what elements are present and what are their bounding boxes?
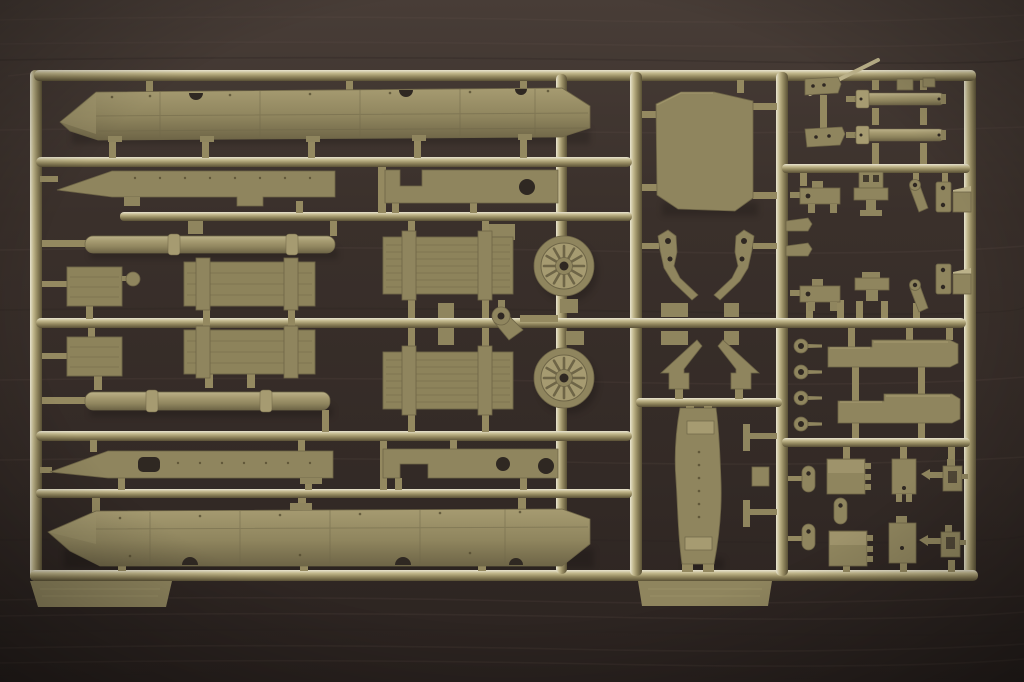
photo-vignette xyxy=(0,0,1024,682)
photo-model-kit-sprue xyxy=(0,0,1024,682)
sprue-photo-svg xyxy=(0,0,1024,682)
